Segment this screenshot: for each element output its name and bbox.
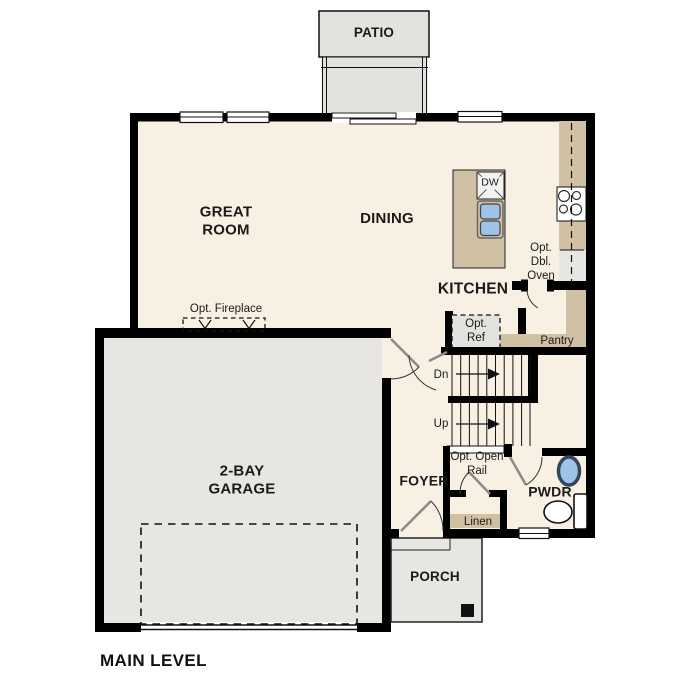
powder-label: PWDR <box>528 483 572 500</box>
pantry-label: Pantry <box>540 334 573 348</box>
sliding-door <box>332 112 416 124</box>
double-oven-label: Opt. Dbl. Oven <box>521 241 561 283</box>
porch-post <box>461 604 474 617</box>
kitchen-label: KITCHEN <box>438 281 508 300</box>
toilet-tank-icon <box>574 494 587 529</box>
garage-label: 2-BAY GARAGE <box>195 463 290 500</box>
open-rail-label: Opt. Open Rail <box>443 450 511 478</box>
plan-title: MAIN LEVEL <box>100 651 207 671</box>
window <box>227 112 269 123</box>
floor-plan-drawing <box>0 0 687 687</box>
double-oven-area <box>559 250 586 283</box>
stairs-up-label: Up <box>434 417 449 431</box>
garage-door-opening <box>382 338 391 378</box>
window <box>180 112 223 123</box>
floor-plan: PATIO GREAT ROOM DINING KITCHEN 2-BAY GA… <box>0 0 687 687</box>
dishwasher-label: DW <box>480 177 500 190</box>
cooktop-icon <box>557 187 586 221</box>
toilet-icon <box>544 501 572 523</box>
linen-label: Linen <box>464 515 492 529</box>
window <box>519 528 549 539</box>
patio-label: PATIO <box>354 25 394 41</box>
kitchen-counter <box>557 121 586 283</box>
fireplace-label: Opt. Fireplace <box>190 302 262 316</box>
stairs-down-label: Dn <box>434 368 449 382</box>
porch-label: PORCH <box>410 569 460 585</box>
dining-label: DINING <box>360 210 414 228</box>
sink-icon <box>559 457 580 485</box>
foyer-label: FOYER <box>399 472 448 489</box>
great-room-label: GREAT ROOM <box>186 204 266 241</box>
window <box>458 112 502 123</box>
refrigerator-label: Opt. Ref <box>459 317 493 345</box>
